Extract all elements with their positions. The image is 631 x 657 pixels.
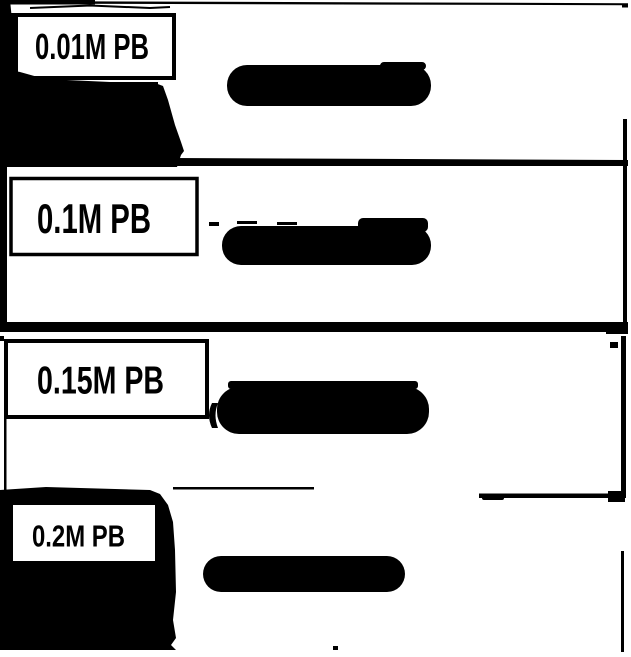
svg-text:0.15M PB: 0.15M PB [37,360,164,403]
svg-text:0.1M PB: 0.1M PB [37,195,151,242]
svg-text:0.01M PB: 0.01M PB [35,26,149,67]
svg-text:0.2M PB: 0.2M PB [32,520,125,554]
